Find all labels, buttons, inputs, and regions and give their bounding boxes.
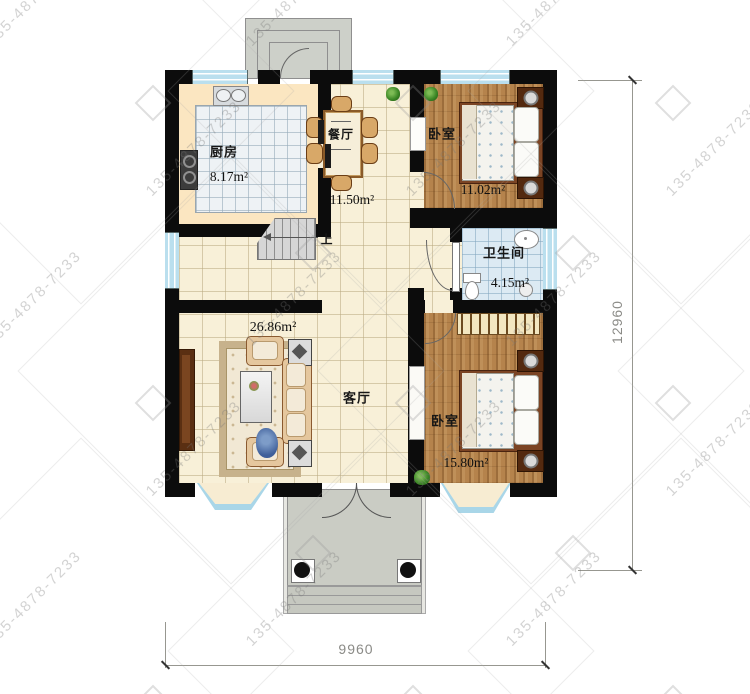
- watermark-diamond: [555, 235, 592, 272]
- bedroom-top-name-label: 卧室: [428, 124, 456, 143]
- sofa-cushion: [286, 363, 306, 387]
- wall: [165, 70, 179, 232]
- wall: [410, 208, 557, 228]
- wall: [408, 288, 424, 300]
- nightstand: [517, 350, 544, 372]
- nightstand: [517, 87, 544, 109]
- bed-blanket-fold: [462, 105, 477, 179]
- watermark-diamond: [655, 85, 692, 122]
- kitchen-sink-basin: [216, 89, 231, 102]
- wall: [453, 300, 557, 313]
- watermark-outline-diamond: [617, 157, 750, 584]
- bedroom-bottom-area-label: 15.80m²: [444, 455, 489, 471]
- height-dimension-label: 12960: [609, 300, 625, 344]
- pillow: [514, 375, 539, 410]
- wall: [272, 483, 322, 497]
- potted-plant: [414, 470, 430, 485]
- living-area-label: 26.86m²: [250, 320, 297, 336]
- dining-area-label: 11.50m²: [330, 192, 374, 208]
- porch-column-left-core: [294, 562, 310, 578]
- kitchen-name-label: 厨房: [210, 142, 238, 161]
- dining-table-line: [331, 149, 351, 150]
- dining-chair: [306, 143, 323, 164]
- wall: [392, 70, 440, 84]
- kitchen-window: [192, 70, 248, 84]
- potted-plant: [386, 87, 400, 101]
- potted-plant: [424, 87, 438, 101]
- dimension-tick: [545, 622, 546, 668]
- watermark-diamond: [555, 535, 592, 572]
- floor-vase: [256, 428, 278, 458]
- stairs-direction-arrowhead: [263, 233, 271, 241]
- watermark-text: 135-4878-7233: [0, 247, 85, 349]
- watermark-text: 135-4878-7233: [663, 397, 750, 499]
- sofa-cushion: [286, 413, 306, 437]
- stairs-up-label: 上: [320, 231, 333, 248]
- bedroom-bottom-wall-niche: [409, 366, 425, 440]
- bed-blanket-fold: [462, 373, 477, 447]
- kitchen-sliding-door-panel: [318, 120, 324, 144]
- dining-table-line: [331, 121, 351, 122]
- watermark-diamond: [655, 385, 692, 422]
- bathroom-window: [543, 228, 557, 290]
- wall: [165, 300, 322, 313]
- width-dimension-label: 9960: [338, 641, 373, 657]
- armchair-cushion: [252, 341, 278, 360]
- stove-burner: [183, 171, 196, 184]
- floor-plan: 厨房 8.17m² 餐厅 11.50m² 卧室 11.02m² 卫生间 4.15…: [0, 0, 750, 694]
- dining-window: [352, 70, 394, 84]
- watermark-diamond: [395, 685, 432, 694]
- dining-name-label: 餐厅: [328, 126, 354, 143]
- dining-chair: [331, 175, 352, 191]
- wall: [543, 70, 557, 228]
- nightstand: [517, 450, 544, 472]
- watermark-text: 135-4878-7233: [663, 97, 750, 199]
- watermark-diamond: [135, 685, 172, 694]
- watermark-text: 135-4878-7233: [0, 0, 85, 50]
- bathroom-door-leaf: [452, 242, 460, 292]
- watermark-diamond: [655, 685, 692, 694]
- dining-chair: [361, 117, 378, 138]
- porch-column-right-core: [400, 562, 416, 578]
- living-name-label: 客厅: [343, 388, 371, 407]
- dimension-line-right: [632, 80, 633, 570]
- bedroom-top-area-label: 11.02m²: [461, 182, 505, 198]
- stove-burner: [183, 155, 196, 168]
- front-porch-steps: [287, 585, 422, 614]
- watermark-text: 135-4878-7233: [0, 547, 85, 649]
- wall: [390, 483, 440, 497]
- pillow: [514, 410, 539, 445]
- bedroom-top-wall-niche: [410, 117, 426, 151]
- dimension-line-bottom: [165, 665, 546, 666]
- sofa-cushion: [286, 388, 306, 412]
- bedroom-bottom-name-label: 卧室: [431, 411, 459, 430]
- kitchen-sink-basin: [231, 89, 246, 102]
- hallway-window: [165, 232, 179, 289]
- bedroom-top-window: [440, 70, 510, 84]
- kitchen-area-label: 8.17m²: [210, 169, 248, 185]
- bathroom-name-label: 卫生间: [483, 243, 525, 262]
- coffee-table-decor: [249, 381, 259, 391]
- watermark-text: 135-4878-7233: [503, 0, 605, 50]
- toilet-bowl: [465, 281, 479, 300]
- dining-chair: [331, 96, 352, 112]
- bathroom-area-label: 4.15m²: [491, 275, 529, 291]
- wall: [310, 70, 352, 84]
- wall: [543, 288, 557, 497]
- dimension-tick: [165, 622, 166, 668]
- tv-cabinet-inner: [182, 355, 190, 443]
- pillow: [514, 107, 539, 142]
- watermark-text: 135-4878-7233: [503, 547, 605, 649]
- bathroom-sink-drain: [524, 237, 527, 240]
- wall: [258, 70, 280, 84]
- bay-window-left-floor: [196, 483, 270, 504]
- nightstand: [517, 177, 544, 199]
- coffee-table: [240, 371, 272, 423]
- kitchen-sliding-door-panel: [325, 144, 331, 168]
- wardrobe: [457, 313, 540, 335]
- dining-chair: [361, 143, 378, 164]
- stairs-direction-line: [270, 237, 318, 238]
- pillow: [514, 142, 539, 177]
- wall: [165, 287, 179, 497]
